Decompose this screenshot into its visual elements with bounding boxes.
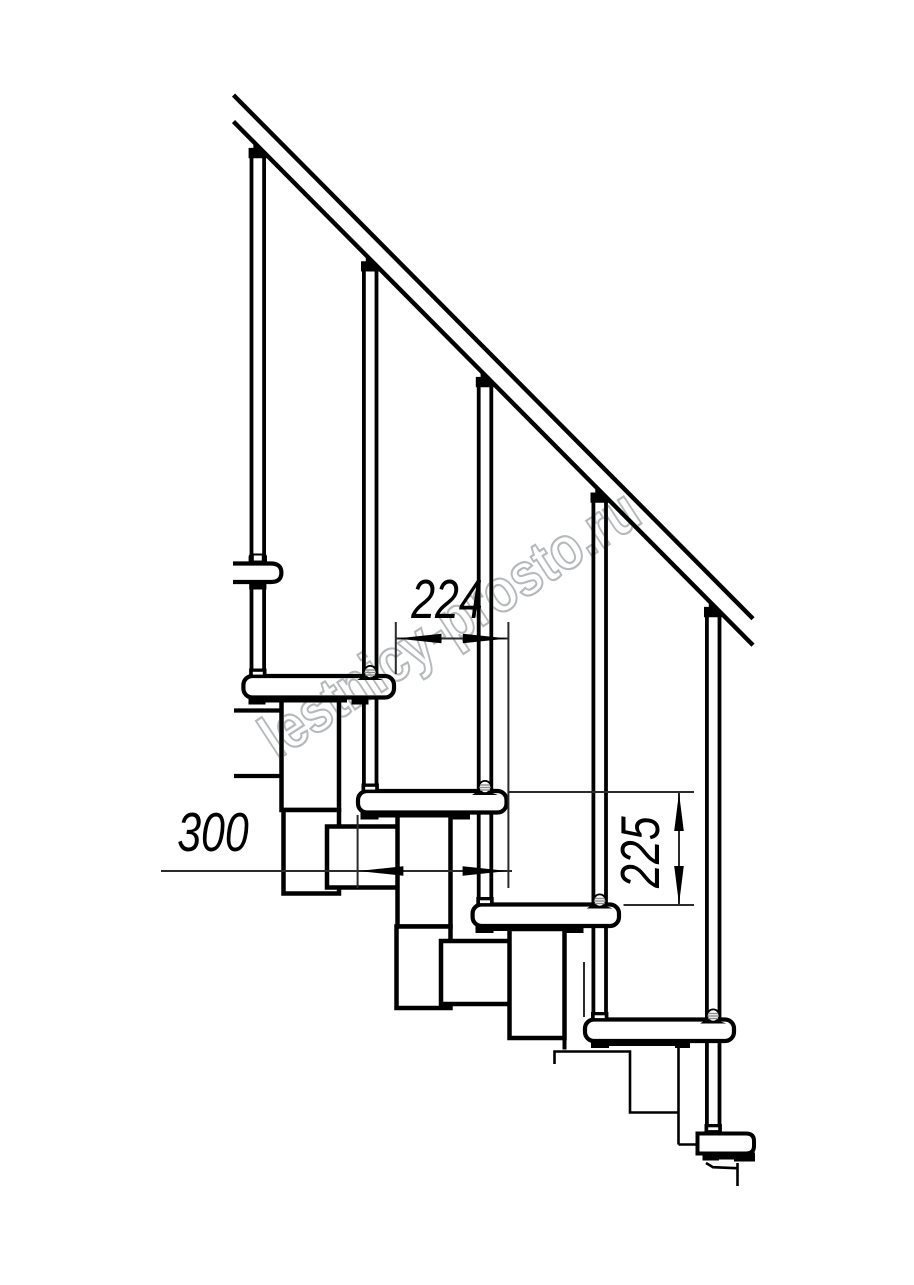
svg-text:300: 300 (177, 802, 249, 863)
svg-text:225: 225 (610, 816, 671, 889)
svg-text:224: 224 (410, 569, 482, 630)
